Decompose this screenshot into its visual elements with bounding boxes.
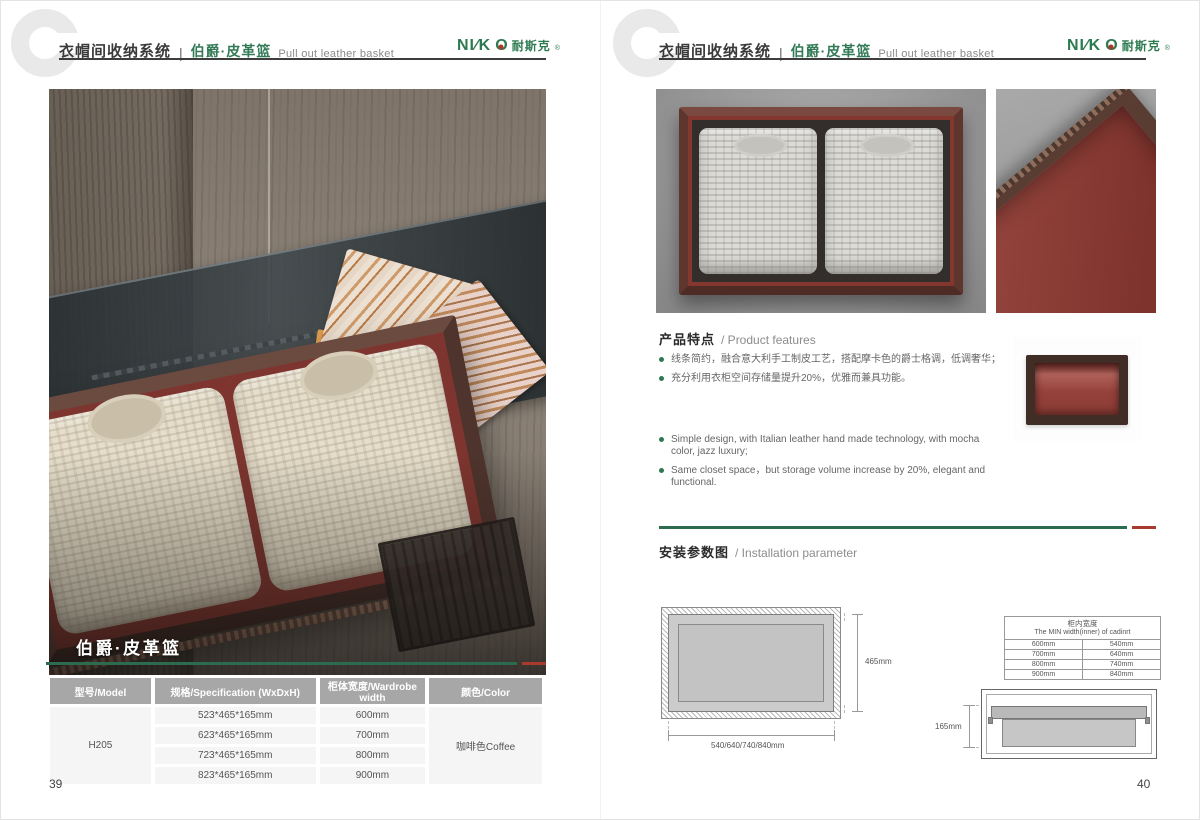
installation-heading: 安装参数图 / Installation parameter: [659, 542, 857, 561]
feature-item: Simple design, with Italian leather hand…: [659, 434, 1004, 458]
sideview-height-label: 165mm: [935, 722, 962, 731]
section-divider-right: [659, 526, 1156, 529]
catalog-spread: 衣帽间收纳系统 | 伯爵·皮革篮 Pull out leather basket…: [0, 0, 1200, 820]
features-heading-cn: 产品特点: [659, 329, 715, 348]
sideview-basket-frame-bar: [991, 706, 1147, 719]
divider-green-bar: [46, 662, 517, 665]
nisko-logo-o-icon: O: [1105, 37, 1117, 55]
features-heading: 产品特点 / Product features: [659, 329, 816, 348]
topview-basket-inner: [678, 624, 824, 702]
bullet-icon: [659, 468, 664, 473]
dimension-tick: [834, 730, 835, 741]
feature-item: 充分利用衣柜空间存储量提升20%，优雅而兼具功能。: [659, 373, 1004, 385]
dimension-line-horizontal: [668, 735, 834, 736]
feature-text-cn: 线条简约，融合意大利手工制皮工艺，搭配摩卡色的爵士格调，低调奢华；: [671, 354, 1001, 366]
width-cell: 700mm: [320, 727, 426, 744]
nisko-logo-text: NI∕K: [457, 37, 491, 55]
registered-mark: ®: [555, 45, 560, 52]
bullet-icon: [659, 357, 664, 362]
topview-basket-frame: [668, 614, 834, 712]
nisko-logo-o-icon: O: [495, 37, 507, 55]
table-row: H205 523*465*165mm 600mm 咖啡色Coffee: [50, 707, 542, 724]
divider-red-bar: [1132, 526, 1156, 529]
extension-line: [844, 705, 845, 713]
col-header-spec: 规格/Specification (WxDxH): [155, 678, 316, 704]
product-photo-topview: [656, 89, 986, 313]
min-width-row: 600mm 540mm: [1005, 640, 1161, 650]
page-number-left: 39: [49, 777, 62, 791]
product-photo-corner-detail: [996, 89, 1156, 313]
inner-width-value: 740mm: [1083, 660, 1161, 670]
registered-mark: ®: [1165, 45, 1170, 52]
extension-line: [844, 613, 845, 621]
page-number-right: 40: [1137, 777, 1150, 791]
dimension-tick: [964, 747, 975, 748]
min-width-table-title: 柜内宽度 The MIN width(inner) of cadinrt: [1005, 617, 1161, 640]
page-gutter: [600, 1, 601, 820]
dimension-line-vertical: [857, 614, 858, 712]
col-header-model: 型号/Model: [50, 678, 151, 704]
width-cell: 600mm: [320, 707, 426, 724]
features-bullets-en: Simple design, with Italian leather hand…: [659, 434, 1004, 489]
installation-heading-cn: 安装参数图: [659, 542, 729, 561]
wardrobe-width-value: 600mm: [1005, 640, 1083, 650]
sweater-left: [699, 128, 817, 274]
color-cell: 咖啡色Coffee: [429, 707, 542, 784]
spec-cell: 723*465*165mm: [155, 747, 316, 764]
dimension-tick: [668, 730, 669, 741]
inner-width-value: 840mm: [1083, 670, 1161, 680]
topview-height-label: 465mm: [865, 657, 892, 666]
dimension-line-vertical: [969, 705, 970, 747]
features-bullets-cn: 线条简约，融合意大利手工制皮工艺，搭配摩卡色的爵士格调，低调奢华； 充分利用衣柜…: [659, 354, 1004, 385]
header-divider-line: [659, 58, 1146, 60]
nisko-logo-text: NI∕K: [1067, 37, 1101, 55]
feature-item: 线条简约，融合意大利手工制皮工艺，搭配摩卡色的爵士格调，低调奢华；: [659, 354, 1004, 366]
min-width-row: 900mm 840mm: [1005, 670, 1161, 680]
leather-basket-render: [1026, 355, 1128, 425]
divider-green-bar: [659, 526, 1127, 529]
spec-cell: 623*465*165mm: [155, 727, 316, 744]
dimension-tick: [852, 614, 863, 615]
feature-text-cn: 充分利用衣柜空间存储量提升20%，优雅而兼具功能。: [671, 373, 911, 385]
inner-width-value: 540mm: [1083, 640, 1161, 650]
nisko-logo: NI∕KO 耐斯克 ®: [457, 37, 560, 55]
nisko-logo-cn: 耐斯克: [1122, 37, 1161, 54]
divider-red-bar: [522, 662, 546, 665]
width-cell: 900mm: [320, 767, 426, 784]
width-cell: 800mm: [320, 747, 426, 764]
spec-cell: 523*465*165mm: [155, 707, 316, 724]
basket-top-view: [679, 107, 963, 295]
min-width-table-header: 柜内宽度 The MIN width(inner) of cadinrt: [1005, 617, 1161, 640]
feature-item: Same closet space，but storage volume inc…: [659, 465, 1004, 489]
spec-cell: 823*465*165mm: [155, 767, 316, 784]
inner-width-value: 640mm: [1083, 650, 1161, 660]
installation-heading-en: / Installation parameter: [735, 546, 857, 560]
sideview-basket-body: [1002, 719, 1136, 747]
col-header-color: 颜色/Color: [429, 678, 542, 704]
product-photo-wardrobe: 伯爵·皮革篮: [49, 89, 546, 675]
section-divider-left: [46, 662, 546, 665]
wardrobe-width-value: 700mm: [1005, 650, 1083, 660]
photo-shadow: [49, 89, 546, 675]
col-header-width: 柜体宽度/Wardrobe width: [320, 678, 426, 704]
min-width-row: 800mm 740mm: [1005, 660, 1161, 670]
bullet-icon: [659, 437, 664, 442]
features-heading-en: / Product features: [721, 333, 816, 347]
specification-table: 型号/Model 规格/Specification (WxDxH) 柜体宽度/W…: [46, 675, 546, 787]
table-header-row: 型号/Model 规格/Specification (WxDxH) 柜体宽度/W…: [50, 678, 542, 704]
wardrobe-width-value: 900mm: [1005, 670, 1083, 680]
sideview-bracket-right: [1145, 717, 1150, 724]
model-cell: H205: [50, 707, 151, 784]
header-divider-line: [59, 58, 546, 60]
min-width-row: 700mm 640mm: [1005, 650, 1161, 660]
feature-text-en: Same closet space，but storage volume inc…: [671, 465, 1004, 489]
sideview-diagram: [981, 689, 1157, 759]
topview-diagram: [661, 607, 841, 719]
min-width-table: 柜内宽度 The MIN width(inner) of cadinrt 600…: [1004, 616, 1161, 680]
product-thumbnail: [1013, 337, 1141, 441]
min-width-title-cn: 柜内宽度: [1068, 619, 1098, 628]
dimension-tick: [964, 705, 975, 706]
wardrobe-width-value: 800mm: [1005, 660, 1083, 670]
leather-interior: [1035, 363, 1119, 415]
min-width-title-en: The MIN width(inner) of cadinrt: [1005, 628, 1160, 637]
photo-caption: 伯爵·皮革篮: [76, 634, 182, 659]
basket-corner-frame: [996, 89, 1156, 313]
dimension-tick: [852, 711, 863, 712]
nisko-logo-cn: 耐斯克: [512, 37, 551, 54]
nisko-logo: NI∕KO 耐斯克 ®: [1067, 37, 1170, 55]
feature-text-en: Simple design, with Italian leather hand…: [671, 434, 1004, 458]
sweater-right: [825, 128, 943, 274]
sideview-bracket-left: [988, 717, 993, 724]
bullet-icon: [659, 376, 664, 381]
topview-width-label: 540/640/740/840mm: [711, 741, 784, 750]
